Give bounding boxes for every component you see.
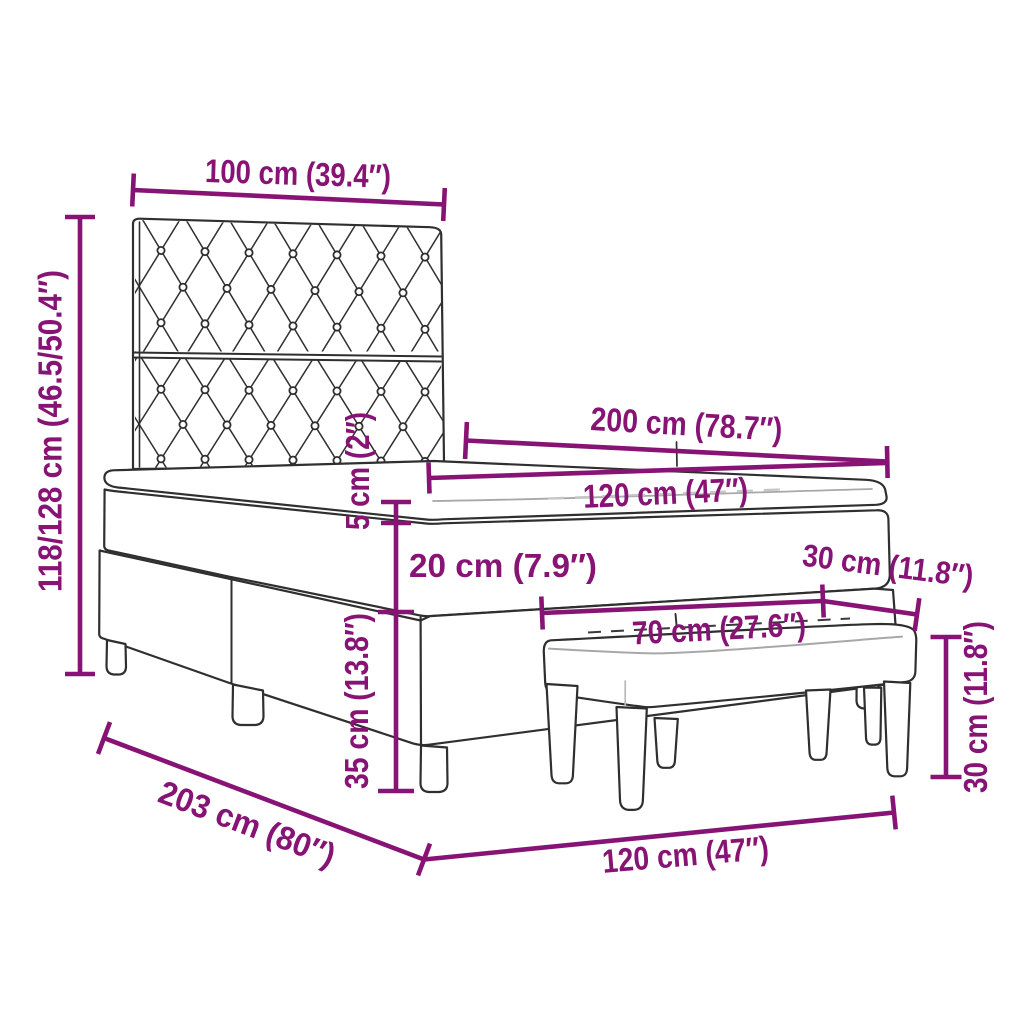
svg-text:5 cm (2″): 5 cm (2″) <box>339 412 376 530</box>
svg-text:35 cm (13.8″): 35 cm (13.8″) <box>338 613 375 789</box>
svg-text:118/128 cm (46.5/50.4″): 118/128 cm (46.5/50.4″) <box>31 270 68 592</box>
svg-text:30 cm (11.8″): 30 cm (11.8″) <box>957 621 994 793</box>
svg-text:100 cm (39.4″): 100 cm (39.4″) <box>204 152 391 195</box>
svg-text:120 cm (47″): 120 cm (47″) <box>582 470 749 514</box>
svg-text:20 cm (7.9″): 20 cm (7.9″) <box>409 547 597 584</box>
